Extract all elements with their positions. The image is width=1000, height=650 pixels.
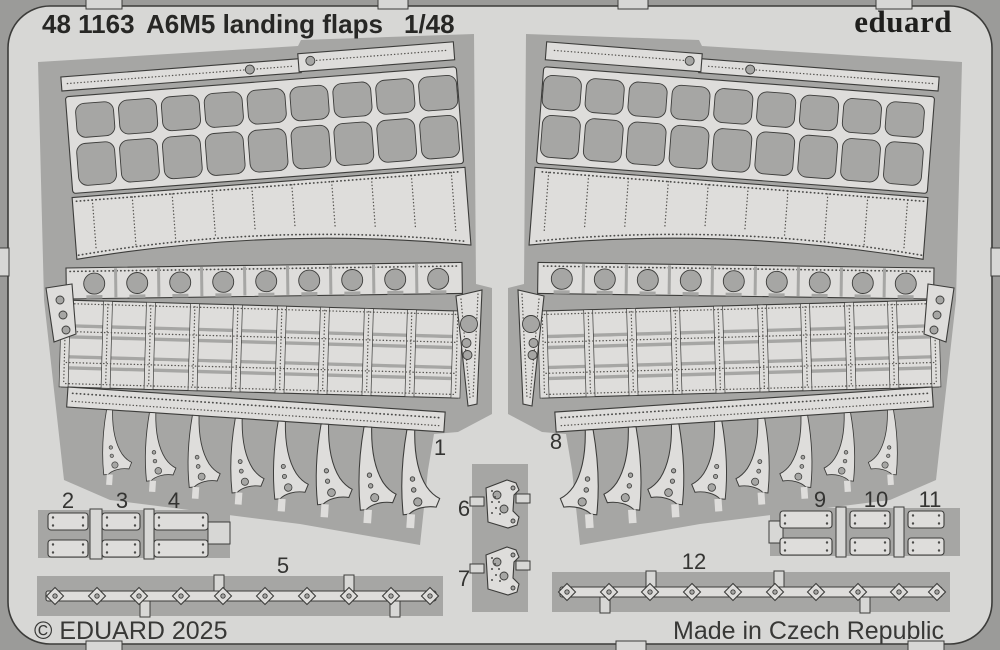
- pe-fret-sheet: 48 1163 A6M5 landing flaps 1/48 eduard ©…: [0, 0, 1000, 650]
- part-label-5: 5: [277, 553, 289, 578]
- parts-cluster-6-7: [470, 464, 530, 612]
- part-label-6: 6: [458, 496, 470, 521]
- copyright-text: © EDUARD 2025: [34, 617, 228, 645]
- parts-cluster-2-3-4: [38, 509, 230, 559]
- part-label-1: 1: [434, 435, 446, 460]
- part-label-11: 11: [919, 487, 942, 512]
- part-12-hinge-strip: [552, 571, 950, 613]
- photoetch-sheet-photo: 48 1163 A6M5 landing flaps 1/48 eduard ©…: [0, 0, 1000, 650]
- part-label-8: 8: [550, 429, 562, 454]
- part-label-4: 4: [168, 488, 180, 513]
- scale-label: 1/48: [404, 9, 455, 39]
- part-label-9: 9: [814, 487, 826, 512]
- parts-cluster-9-10-11: [769, 507, 960, 557]
- made-in-text: Made in Czech Republic: [673, 617, 944, 645]
- part-label-10: 10: [864, 487, 888, 512]
- part-label-2: 2: [62, 488, 74, 513]
- flap-assembly-left: [38, 34, 492, 545]
- part-label-12: 12: [682, 549, 706, 574]
- product-title: A6M5 landing flaps: [146, 9, 383, 39]
- part-label-3: 3: [116, 488, 128, 513]
- catalog-number: 48 1163: [42, 9, 135, 39]
- part-5-hinge-strip: [37, 575, 443, 617]
- brand-logo: eduard: [854, 4, 952, 39]
- flap-assembly-right: [508, 34, 962, 545]
- part-label-7: 7: [458, 566, 470, 591]
